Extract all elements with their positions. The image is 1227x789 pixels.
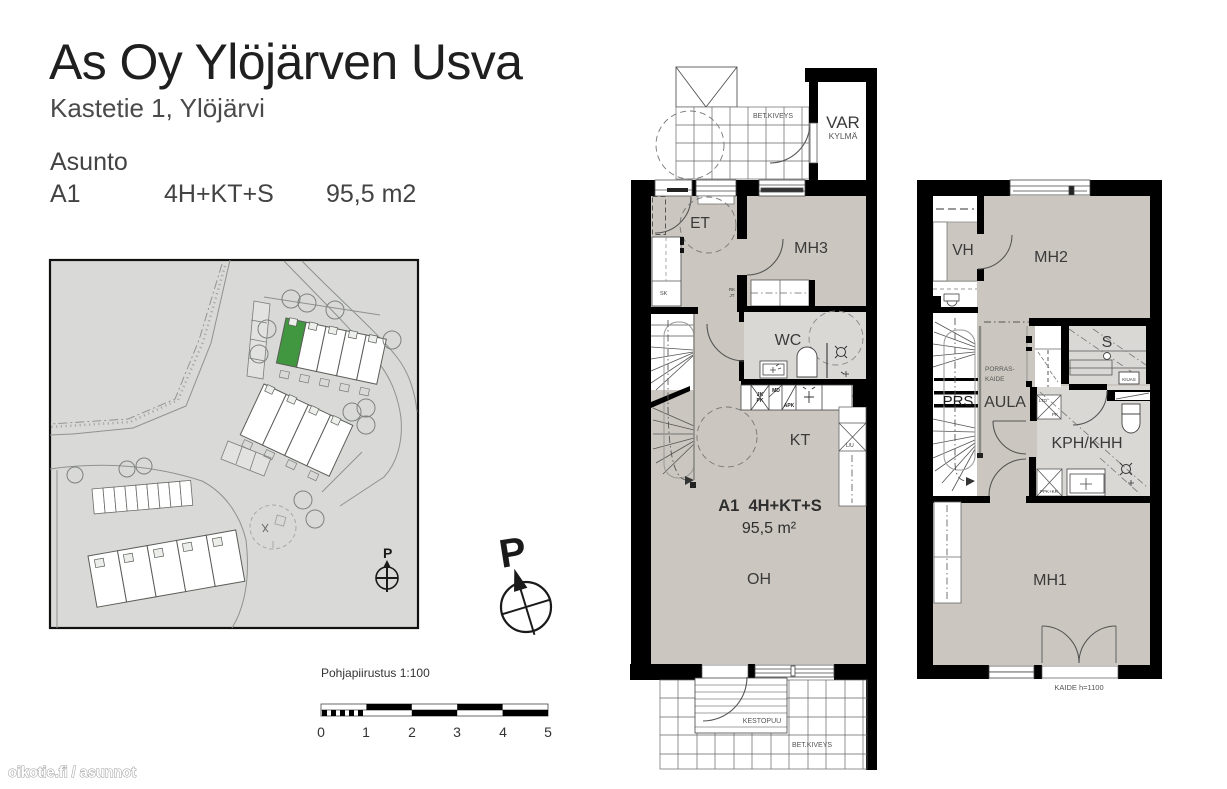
svg-text:WC: WC — [775, 332, 802, 349]
svg-text:As Oy Ylöjärven Usva: As Oy Ylöjärven Usva — [49, 34, 523, 90]
svg-text:AULA: AULA — [984, 394, 1026, 411]
svg-text:KESTOPUU: KESTOPUU — [743, 718, 781, 725]
svg-text:S: S — [1102, 334, 1113, 351]
svg-text:KPH/KHH: KPH/KHH — [1051, 435, 1122, 452]
svg-text:2: 2 — [408, 724, 416, 740]
svg-text:Kastetie 1, Ylöjärvi: Kastetie 1, Ylöjärvi — [50, 93, 265, 123]
svg-text:L/U: L/U — [846, 443, 854, 449]
svg-text:KT: KT — [790, 432, 811, 449]
svg-text:A1 4H+KT+S: A1 4H+KT+S — [718, 497, 822, 515]
svg-text:BET.KIVEYS: BET.KIVEYS — [753, 113, 793, 120]
svg-text:APK: APK — [784, 403, 795, 409]
svg-text:Asunto: Asunto — [50, 148, 128, 176]
svg-text:KAIDE: KAIDE — [985, 376, 1005, 383]
svg-text:PK: PK — [1052, 412, 1058, 417]
svg-text:PK: PK — [757, 398, 764, 404]
svg-text:ET: ET — [690, 215, 710, 232]
svg-text:KYLMÄ: KYLMÄ — [829, 131, 858, 141]
svg-text:95,5 m²: 95,5 m² — [742, 520, 797, 537]
svg-text:KAIDE h=1100: KAIDE h=1100 — [1054, 683, 1103, 692]
svg-text:PRS: PRS — [943, 393, 974, 410]
svg-text:JT: JT — [730, 293, 735, 298]
svg-text:MH1: MH1 — [1033, 572, 1067, 589]
svg-text:MD: MD — [772, 388, 780, 394]
svg-text:95,5 m2: 95,5 m2 — [326, 180, 416, 208]
svg-text:SK: SK — [660, 291, 668, 297]
svg-text:MH2: MH2 — [1034, 249, 1068, 266]
svg-text:MH3: MH3 — [794, 240, 828, 257]
svg-text:PPK+KR: PPK+KR — [1040, 489, 1059, 494]
svg-text:5: 5 — [544, 724, 552, 740]
svg-text:4: 4 — [499, 724, 507, 740]
svg-text:OH: OH — [747, 571, 771, 588]
svg-text:BET.KIVEYS: BET.KIVEYS — [792, 742, 832, 749]
svg-text:3: 3 — [453, 724, 461, 740]
svg-text:LTO: LTO — [1039, 398, 1048, 403]
svg-text:oikotie.fi / asunnot: oikotie.fi / asunnot — [8, 765, 136, 781]
svg-text:RK: RK — [729, 287, 735, 292]
svg-text:Pohjapiirustus 1:100: Pohjapiirustus 1:100 — [321, 666, 430, 680]
svg-text:KIUAS: KIUAS — [1122, 377, 1136, 382]
svg-text:PORRAS-: PORRAS- — [985, 366, 1015, 373]
svg-text:VAR: VAR — [826, 113, 860, 132]
svg-text:VH: VH — [952, 242, 974, 259]
svg-text:P: P — [383, 545, 392, 561]
svg-text:1: 1 — [362, 724, 370, 740]
svg-text:0: 0 — [317, 724, 325, 740]
svg-text:A1: A1 — [50, 180, 81, 208]
svg-text:4H+KT+S: 4H+KT+S — [164, 180, 274, 208]
